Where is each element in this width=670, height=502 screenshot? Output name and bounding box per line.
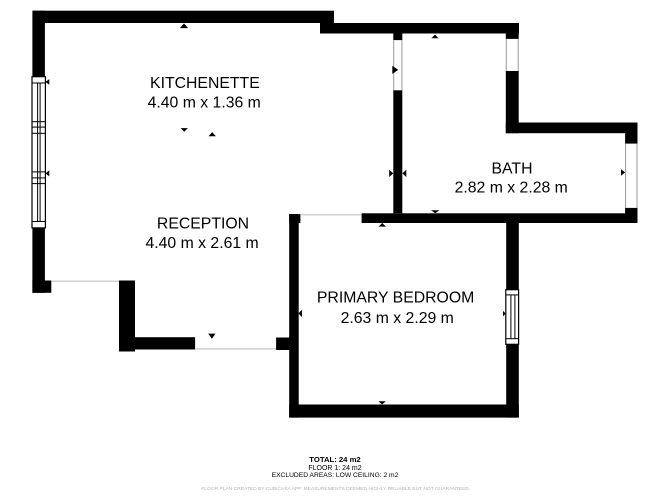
svg-text:RECEPTION: RECEPTION: [157, 215, 249, 232]
svg-text:2.63 m x 2.29 m: 2.63 m x 2.29 m: [341, 310, 454, 327]
svg-text:KITCHENETTE: KITCHENETTE: [150, 75, 260, 92]
svg-text:FLOOR 1: 24 m2: FLOOR 1: 24 m2: [308, 465, 361, 472]
svg-text:4.40 m x 2.61 m: 4.40 m x 2.61 m: [145, 235, 258, 252]
svg-text:BATH: BATH: [492, 161, 533, 178]
svg-text:FLOOR PLAN CREATED BY CUBICASA: FLOOR PLAN CREATED BY CUBICASA APP. MEAS…: [201, 486, 470, 492]
svg-text:4.40 m x 1.36 m: 4.40 m x 1.36 m: [148, 94, 261, 111]
svg-text:PRIMARY BEDROOM: PRIMARY BEDROOM: [317, 290, 474, 307]
svg-text:2.82 m x 2.28 m: 2.82 m x 2.28 m: [455, 180, 568, 197]
svg-text:EXCLUDED AREAS: LOW CEILING: 2: EXCLUDED AREAS: LOW CEILING: 2 m2: [272, 472, 399, 479]
svg-text:TOTAL: 24 m2: TOTAL: 24 m2: [309, 455, 360, 464]
